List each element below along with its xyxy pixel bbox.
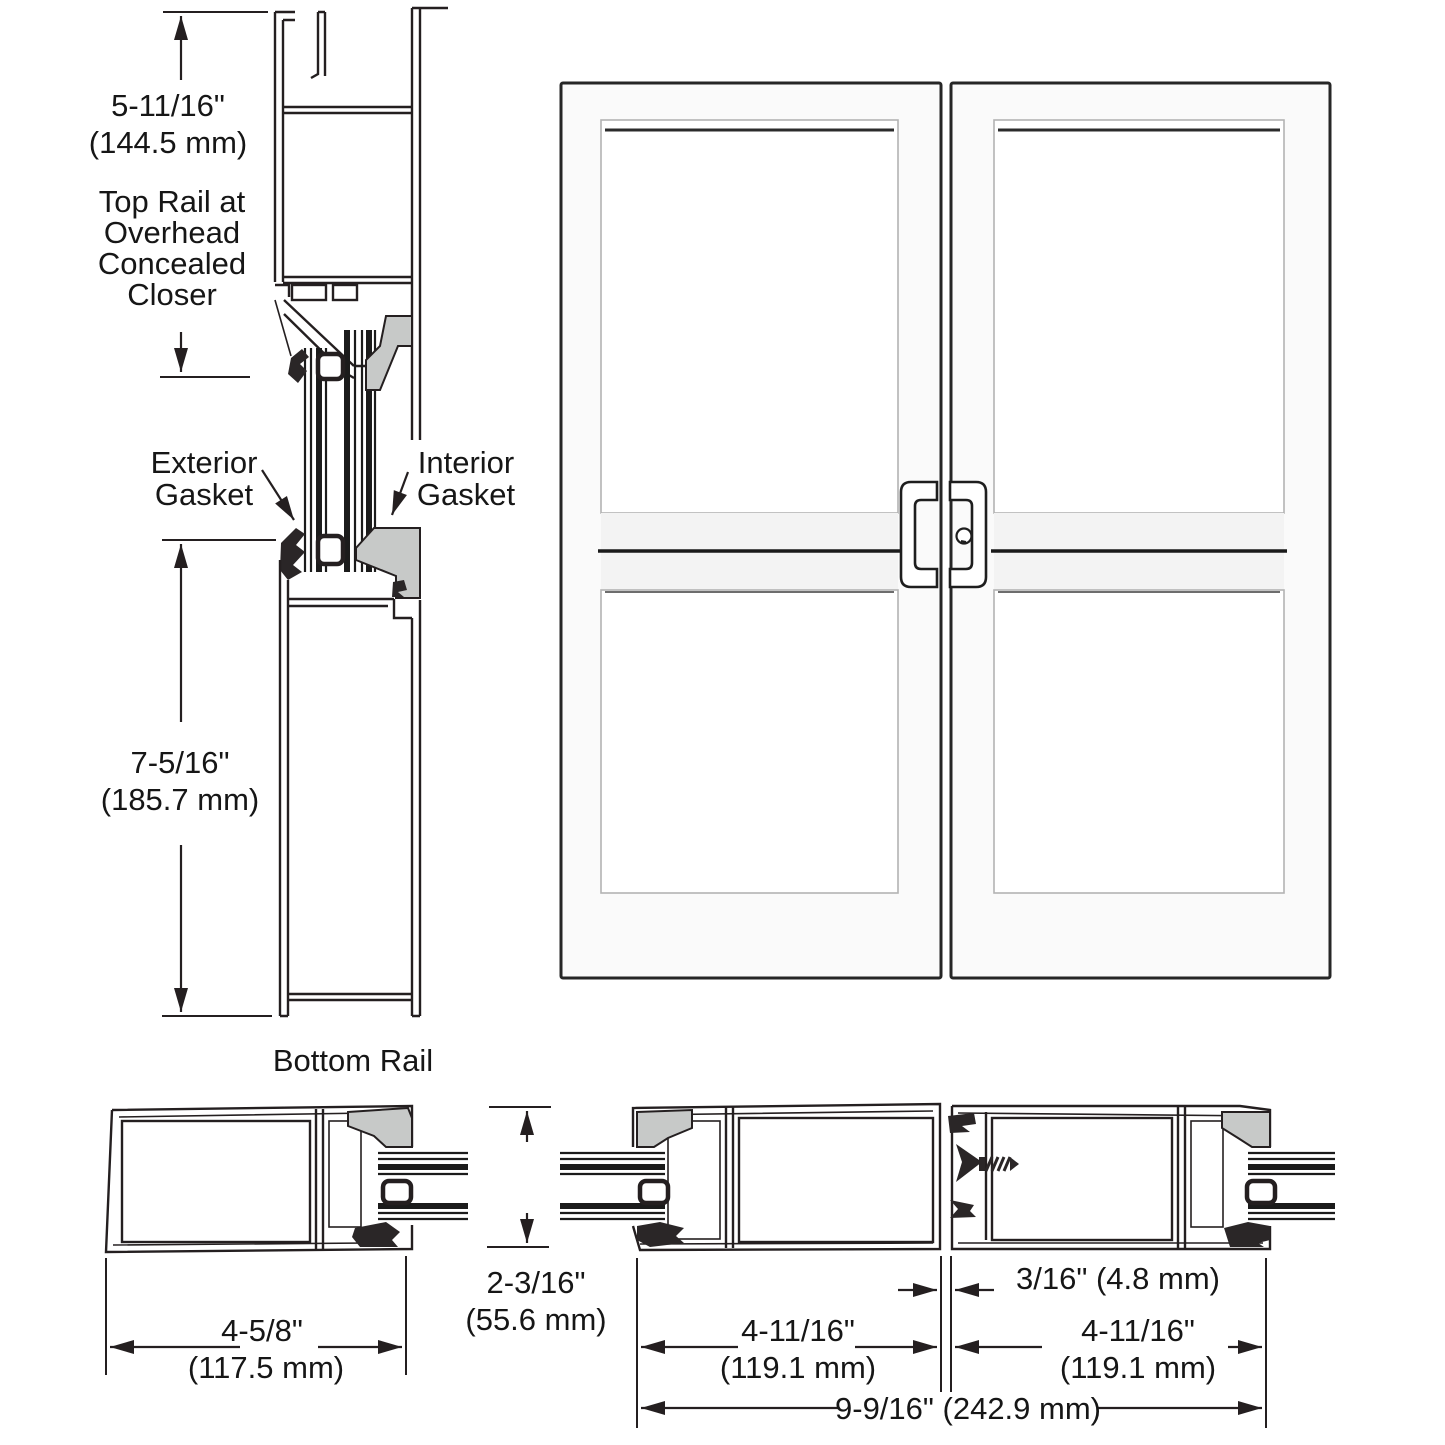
- technical-drawing-page: 5-11/16" (144.5 mm) Top Rail at Overhead…: [0, 0, 1445, 1445]
- dim-text: 4-11/16": [741, 1313, 855, 1348]
- interior-gasket-top: [366, 316, 412, 390]
- dim-text: (185.7 mm): [101, 782, 259, 817]
- glass-spacer: [383, 1181, 411, 1203]
- door-pair-elevation: [561, 83, 1330, 978]
- label-bottom-rail: Bottom Rail: [273, 1043, 433, 1078]
- dim-text: 4-5/8": [221, 1313, 303, 1348]
- exterior-gasket-bottom: [280, 528, 305, 580]
- dim-text: 7-5/16": [131, 745, 230, 780]
- label-line: Gasket: [417, 477, 516, 512]
- hinge-stile-plan-view: [106, 1106, 412, 1252]
- dim-overall-stile-pair: 9-9/16" (242.9 mm): [641, 1391, 1262, 1426]
- glass-spacer: [1247, 1181, 1275, 1203]
- glass-spacer-bottom: [318, 536, 343, 564]
- glass-spacer-top: [318, 354, 343, 379]
- dim-text: (55.6 mm): [465, 1302, 606, 1337]
- dim-bottom-rail-height: 7-5/16" (185.7 mm): [101, 540, 276, 1016]
- label-exterior-gasket: Exterior Gasket: [151, 445, 294, 520]
- interior-gasket-bottom: [356, 528, 420, 598]
- dim-text: 2-3/16": [487, 1265, 586, 1300]
- dim-text: (119.1 mm): [1060, 1350, 1216, 1385]
- cylinder-lock: [957, 529, 972, 544]
- dim-text: 4-11/16": [1081, 1313, 1195, 1348]
- dim-text: (119.1 mm): [720, 1350, 876, 1385]
- label-line: Interior: [418, 445, 514, 480]
- right-door-upper-glass: [994, 120, 1284, 513]
- label-top-rail: Top Rail at Overhead Concealed Closer: [98, 184, 246, 312]
- left-door: [561, 83, 941, 978]
- right-door: [951, 83, 1330, 978]
- meeting-stiles-plan-view: [560, 1104, 1335, 1250]
- dim-hinge-stile-width: 4-5/8" (117.5 mm): [106, 1256, 406, 1385]
- left-door-lower-glass: [601, 590, 898, 893]
- label-interior-gasket: Interior Gasket: [392, 445, 515, 515]
- dim-text: 9-9/16" (242.9 mm): [835, 1391, 1101, 1426]
- dim-door-thickness: 2-3/16" (55.6 mm): [465, 1107, 606, 1337]
- dim-meeting-gap: 3/16" (4.8 mm): [898, 1261, 1220, 1296]
- label-line: Overhead: [104, 215, 240, 250]
- right-door-lower-glass: [994, 590, 1284, 893]
- label-line: Exterior: [151, 445, 258, 480]
- glass-spacer: [640, 1181, 668, 1203]
- dim-text: (144.5 mm): [89, 125, 247, 160]
- dim-text: (117.5 mm): [188, 1350, 344, 1385]
- door-drawing-canvas: 5-11/16" (144.5 mm) Top Rail at Overhead…: [0, 0, 1445, 1445]
- label-line: Closer: [127, 277, 217, 312]
- dim-text: 3/16" (4.8 mm): [1016, 1261, 1220, 1296]
- label-line: Gasket: [155, 477, 254, 512]
- left-door-upper-glass: [601, 120, 898, 513]
- bottom-rail-section-view: [280, 528, 420, 1016]
- label-line: Top Rail at: [99, 184, 246, 219]
- label-line: Concealed: [98, 246, 246, 281]
- dim-text: 5-11/16": [111, 88, 225, 123]
